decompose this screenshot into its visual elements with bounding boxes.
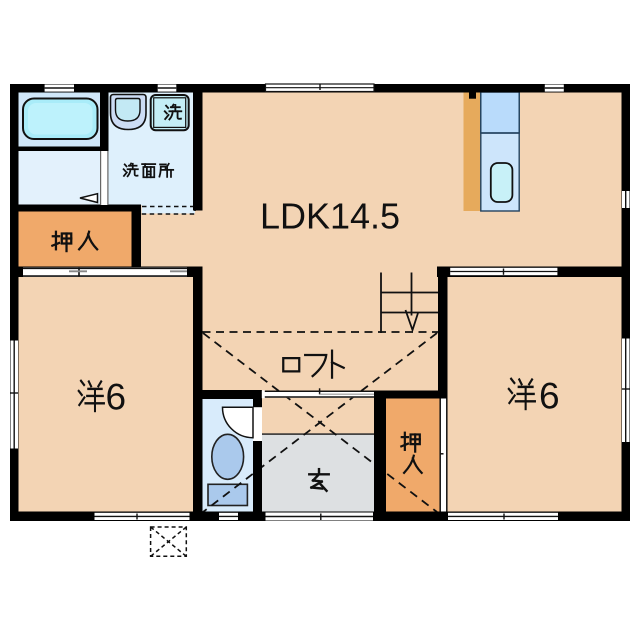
- svg-text:6: 6: [539, 376, 560, 417]
- svg-text:6: 6: [106, 377, 127, 418]
- svg-text:LDK14.5: LDK14.5: [260, 196, 400, 237]
